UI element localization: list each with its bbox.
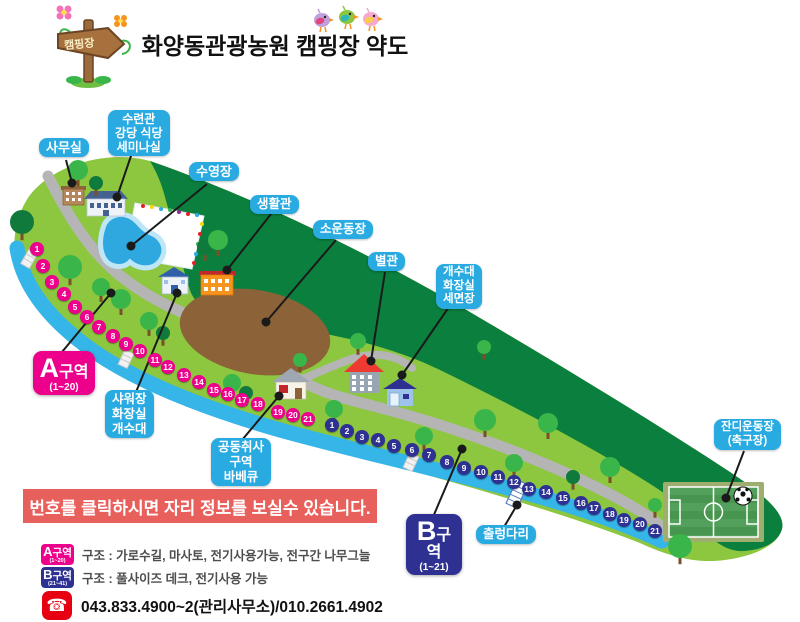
site-marker-b-6[interactable]: 6 <box>405 443 419 457</box>
phone-icon: ☎ <box>42 591 72 620</box>
site-marker-b-12[interactable]: 12 <box>507 475 521 489</box>
site-marker-b-21[interactable]: 21 <box>648 524 662 538</box>
label-small-playground: 소운동장 <box>313 220 373 239</box>
site-marker-a-17[interactable]: 17 <box>235 393 249 407</box>
label-living-hall: 생활관 <box>250 195 299 214</box>
office-building <box>61 186 86 205</box>
site-marker-a-5[interactable]: 5 <box>68 300 82 314</box>
training-center-building <box>84 191 128 216</box>
site-marker-a-7[interactable]: 7 <box>92 320 106 334</box>
site-marker-a-15[interactable]: 15 <box>207 383 221 397</box>
site-marker-b-20[interactable]: 20 <box>633 517 647 531</box>
zone-b-range: (1~21) <box>410 562 458 573</box>
label-office: 사무실 <box>39 138 89 157</box>
map-illustration: 캠핑장 <box>0 0 800 622</box>
contact-row: ☎ 043.833.4900~2(관리사무소)/010.2661.4902 <box>42 591 383 620</box>
living-hall-building <box>199 271 235 295</box>
flower-icon <box>57 6 72 20</box>
site-marker-b-3[interactable]: 3 <box>355 430 369 444</box>
site-marker-a-10[interactable]: 10 <box>133 344 147 358</box>
soccer-field <box>663 482 764 542</box>
site-marker-b-5[interactable]: 5 <box>387 439 401 453</box>
site-marker-b-10[interactable]: 10 <box>474 465 488 479</box>
page-title: 화양동관광농원 캠핑장 약도 <box>120 27 430 61</box>
site-marker-a-9[interactable]: 9 <box>119 337 133 351</box>
site-marker-a-13[interactable]: 13 <box>177 368 191 382</box>
label-shower-restroom: 샤워장 화장실 개수대 <box>105 390 154 438</box>
zone-b-badge: B구역 (21~41) <box>41 567 74 588</box>
zone-a-box: A구역 (1~20) <box>33 351 95 395</box>
zone-a-badge: A구역 (1~20) <box>41 544 74 565</box>
zone-b-name: B구역 <box>410 517 458 562</box>
site-marker-b-11[interactable]: 11 <box>491 470 505 484</box>
label-suspension-bridge: 출렁다리 <box>476 525 536 544</box>
site-marker-b-2[interactable]: 2 <box>340 424 354 438</box>
zone-b-description: 구조 : 풀사이즈 데크, 전기사용 가능 <box>82 568 268 587</box>
legend-row-zone-a: A구역 (1~20) 구조 : 가로수길, 마사토, 전기사용가능, 전구간 나… <box>41 544 370 565</box>
soccer-ball-icon <box>734 487 752 505</box>
site-marker-b-4[interactable]: 4 <box>371 433 385 447</box>
site-marker-b-17[interactable]: 17 <box>587 501 601 515</box>
site-marker-a-8[interactable]: 8 <box>106 329 120 343</box>
site-marker-b-7[interactable]: 7 <box>422 448 436 462</box>
label-training-center: 수련관 강당 식당 세미나실 <box>108 110 170 156</box>
site-marker-a-20[interactable]: 20 <box>286 408 300 422</box>
site-marker-b-14[interactable]: 14 <box>539 485 553 499</box>
site-marker-a-1[interactable]: 1 <box>30 242 44 256</box>
zone-b-box: B구역 (1~21) <box>406 514 462 575</box>
site-marker-a-11[interactable]: 11 <box>148 353 162 367</box>
zone-a-description: 구조 : 가로수길, 마사토, 전기사용가능, 전구간 나무그늘 <box>82 545 370 564</box>
site-marker-a-2[interactable]: 2 <box>36 259 50 273</box>
site-marker-b-16[interactable]: 16 <box>574 496 588 510</box>
flower-icon <box>114 15 127 27</box>
site-marker-b-13[interactable]: 13 <box>522 482 536 496</box>
site-marker-a-6[interactable]: 6 <box>80 310 94 324</box>
site-marker-b-8[interactable]: 8 <box>440 455 454 469</box>
site-marker-b-18[interactable]: 18 <box>603 507 617 521</box>
site-marker-a-16[interactable]: 16 <box>221 387 235 401</box>
label-sink-restroom: 개수대 화장실 세면장 <box>436 264 482 309</box>
zone-a-range: (1~20) <box>37 382 91 393</box>
site-marker-a-18[interactable]: 18 <box>251 397 265 411</box>
campground-map-page: 캠핑장 <box>0 0 800 622</box>
site-marker-a-4[interactable]: 4 <box>57 287 71 301</box>
campsite-signpost: 캠핑장 <box>57 6 130 89</box>
site-marker-b-9[interactable]: 9 <box>457 461 471 475</box>
label-pool: 수영장 <box>189 162 239 181</box>
phone-number: 043.833.4900~2(관리사무소)/010.2661.4902 <box>81 595 383 617</box>
label-communal-cooking: 공동취사 구역 바베큐 <box>211 438 271 486</box>
site-marker-a-19[interactable]: 19 <box>271 405 285 419</box>
site-marker-b-1[interactable]: 1 <box>325 418 339 432</box>
notice-banner: 번호를 클릭하시면 자리 정보를 보실수 있습니다. <box>23 489 377 523</box>
label-annex: 별관 <box>368 252 405 271</box>
zone-a-name: A구역 <box>37 354 91 382</box>
site-marker-a-3[interactable]: 3 <box>45 275 59 289</box>
site-marker-a-21[interactable]: 21 <box>301 412 315 426</box>
site-marker-b-15[interactable]: 15 <box>556 491 570 505</box>
label-grass-field: 잔디운동장 (축구장) <box>714 419 781 450</box>
legend-row-zone-b: B구역 (21~41) 구조 : 풀사이즈 데크, 전기사용 가능 <box>41 567 268 588</box>
site-marker-a-14[interactable]: 14 <box>192 375 206 389</box>
site-marker-b-19[interactable]: 19 <box>617 513 631 527</box>
site-marker-a-12[interactable]: 12 <box>161 360 175 374</box>
